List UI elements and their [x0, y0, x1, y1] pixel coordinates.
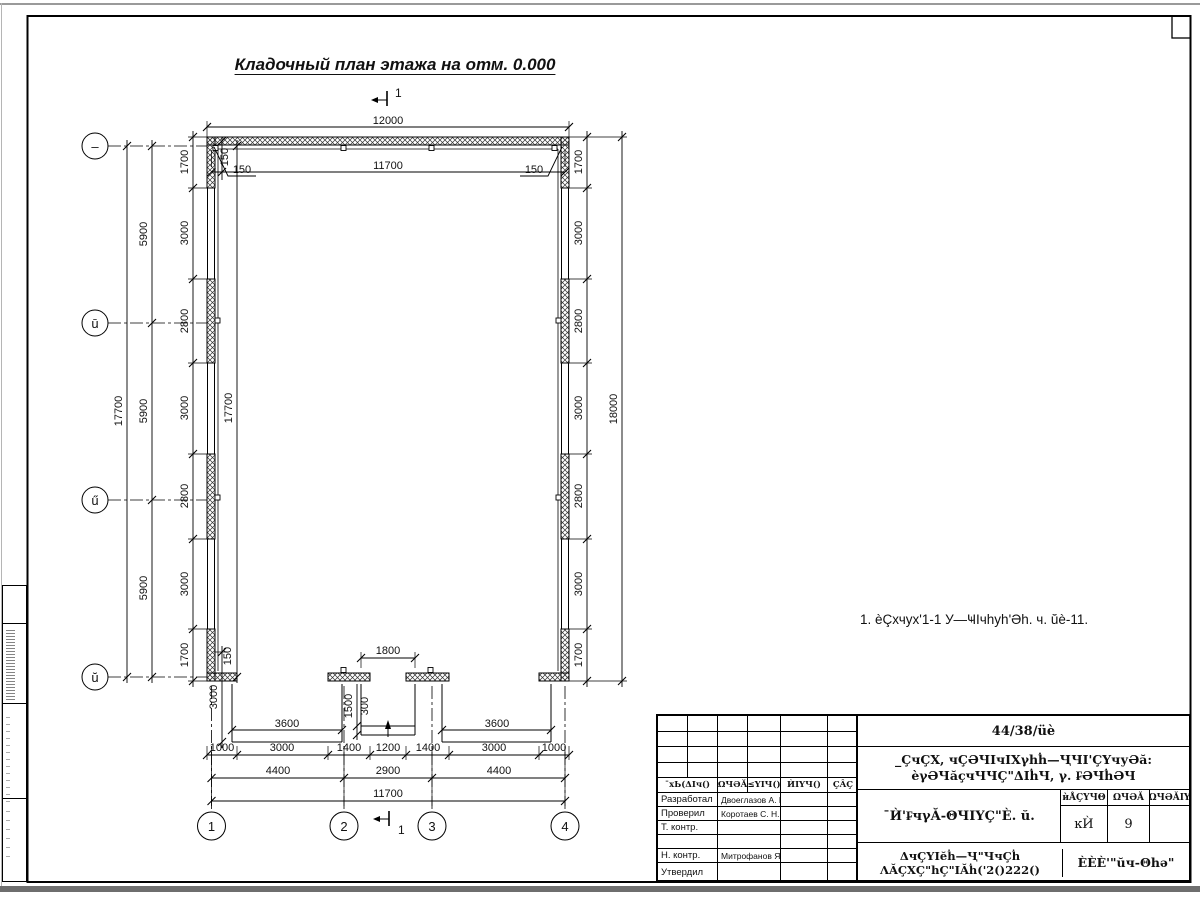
stage-header: ΩЧӘĂ: [1108, 790, 1150, 805]
col-axis-label: 2: [340, 819, 347, 834]
dim-bottom-chain: 1000: [542, 742, 566, 754]
dim-right-total: 18000: [608, 394, 620, 425]
dim-bottom-chain: 1400: [416, 742, 440, 754]
section-mark-bottom: 1: [373, 811, 405, 837]
person-name: Двоеглазов А. В.: [718, 793, 781, 807]
date-cell: [828, 863, 858, 882]
header-row: ¯хЬ(ΔIч() ΩЧӘĂ ≤ҮIЧ() ЍIҮЧ() ÇÂÇ: [658, 778, 856, 793]
dim-bottom-axes: 2900: [376, 765, 400, 777]
dim-left-chain: 3000: [179, 396, 191, 420]
signature-cell: [781, 821, 828, 835]
document-line1: ΔчÇҮIĕḣ—Ҷ"ЧчÇḣ: [900, 849, 1020, 863]
stage-headers: ѝÅÇҮЧΘ ΩЧӘĂ ΩЧӘĂIҮ: [1061, 790, 1189, 806]
signature-cell: [781, 807, 828, 821]
title-block-left: ¯хЬ(ΔIч() ΩЧӘĂ ≤ҮIЧ() ЍIҮЧ() ÇÂÇ Разрабо…: [658, 716, 858, 880]
dim-right-chain: 2800: [573, 484, 585, 508]
dim-right-chain: 3000: [573, 572, 585, 596]
dim-right-chain: 3000: [573, 396, 585, 420]
dim-right-chain: 2800: [573, 309, 585, 333]
left-stamp: [2, 585, 27, 882]
person-name: [718, 835, 781, 849]
project-line1: _ÇчÇX, чÇӘЧIчIXγhḣ—ҶЧI'ÇҮчуӘă:: [895, 752, 1152, 768]
person-name: Коротаев С. Н.: [718, 807, 781, 821]
person-name: [718, 821, 781, 835]
dim-step2: 300: [359, 697, 371, 715]
signature-row: Разработал Двоеглазов А. В.: [658, 793, 856, 807]
dim-left-spacing: 5900: [138, 222, 150, 246]
stamp-divider: [3, 703, 26, 704]
stage-values: ĸЍ 9: [1061, 806, 1189, 842]
dim-left-chain: 3000: [179, 572, 191, 596]
dim-bottom-axes: 4400: [266, 765, 290, 777]
signature-rows: Разработал Двоеглазов А. В. Проверил Кор…: [658, 793, 856, 882]
stage-value: 9: [1108, 806, 1150, 842]
dim-left-chain: 3000: [179, 221, 191, 245]
object-name: ¯Ѝ'₣чγĂ-ΘЧIҮÇ"È. ŭ.: [858, 790, 1061, 842]
signature-row: Т. контр.: [658, 821, 856, 835]
header-col: ≤ҮIЧ(): [748, 778, 781, 793]
row-axis-label: –: [91, 139, 99, 154]
section-mark-top: 1: [371, 86, 402, 106]
drawing-title: Кладочный план этажа на отм. 0.000: [230, 55, 560, 75]
wall-openings: [208, 188, 569, 629]
dim-left-chain: 1700: [179, 643, 191, 667]
dim-left-spacing: 5900: [138, 399, 150, 423]
dim-bottom-chain: 1200: [376, 742, 400, 754]
role-label: Н. контр.: [658, 849, 718, 863]
dim-left-inner-total: 17700: [223, 393, 235, 424]
signature-row: Утвердил: [658, 863, 856, 882]
section-label-top: 1: [395, 86, 402, 100]
row-axis-label: ŭ: [91, 670, 98, 685]
note-text: 1. èÇхчух'1-1 У—ҸIчhуh'Әh. ч. ŭè-11.: [860, 612, 1088, 627]
inner-wall-lines: [218, 149, 558, 671]
role-label: [658, 835, 718, 849]
signature-row: [658, 835, 856, 849]
stage-header: ѝÅÇҮЧΘ: [1061, 790, 1108, 805]
frame-corner-box: [1172, 16, 1191, 38]
signature-cell: [781, 849, 828, 863]
stage-value: ĸЍ: [1061, 806, 1108, 842]
date-cell: [828, 835, 858, 849]
dim-bottom-total: 11700: [373, 788, 403, 800]
company-name: ÈÈÈ'"ŭч-Θhә": [1063, 855, 1189, 870]
header-col: ЍIҮЧ(): [781, 778, 828, 793]
dim-offset-150-corner: 150: [219, 148, 231, 166]
dim-bottom-axes: 4400: [487, 765, 511, 777]
dim-porch-right: 3600: [485, 718, 509, 730]
title-block-right: 44/38/üè _ÇчÇX, чÇӘЧIчIXγhḣ—ҶЧI'ÇҮчуӘă: …: [858, 716, 1189, 880]
dim-bottom-chain: 3000: [270, 742, 294, 754]
date-cell: [828, 793, 858, 807]
role-label: Т. контр.: [658, 821, 718, 835]
porch-lines: [232, 684, 551, 742]
role-label: Утвердил: [658, 863, 718, 882]
signature-cell: [781, 835, 828, 849]
row-axis-label: ū: [91, 316, 98, 331]
date-cell: [828, 807, 858, 821]
drawing-sheet: 1 1 – ū ű ŭ 1 2 3 4 12000: [0, 0, 1200, 900]
dim-left-spacing: 5900: [138, 576, 150, 600]
dim-step1: 1500: [343, 694, 355, 718]
dim-bottom-chain: 3000: [482, 742, 506, 754]
role-label: Проверил: [658, 807, 718, 821]
col-axis-label: 4: [561, 819, 568, 834]
col-axis-label: 1: [208, 819, 215, 834]
dim-bottom-chain: 1400: [337, 742, 361, 754]
date-cell: [828, 849, 858, 863]
date-cell: [828, 821, 858, 835]
stage-value: [1150, 806, 1189, 842]
dim-right-chain: 3000: [573, 221, 585, 245]
dim-right-chain: 1700: [573, 643, 585, 667]
document-name: ΔчÇҮIĕḣ—Ҷ"ЧчÇḣ ΛĂÇХÇ"hÇ"IĂḣ('2()222(): [858, 849, 1063, 877]
header-col: ¯хЬ(ΔIч(): [658, 778, 718, 793]
entrance-arrow: [385, 720, 391, 737]
vent-squares: [213, 146, 561, 673]
project-line2: èγӘЧăçчЧЧÇ"ΔIḣЧ, γ. ₣ӘЧḣӘЧ: [911, 768, 1135, 784]
signature-row: Проверил Коротаев С. Н.: [658, 807, 856, 821]
dim-porch-left: 3600: [275, 718, 299, 730]
dim-left-chain: 2800: [179, 484, 191, 508]
dim-top-total: 12000: [373, 115, 404, 127]
signature-cell: [781, 793, 828, 807]
project-name: _ÇчÇX, чÇӘЧIчIXγhḣ—ҶЧI'ÇҮчуӘă: èγӘЧăçчЧЧ…: [858, 747, 1189, 790]
stamp-text-illegible: [6, 628, 15, 700]
row-axis-label: ű: [91, 493, 98, 508]
dim-offset-150-right: 150: [525, 164, 543, 176]
stamp-text-illegible: [6, 811, 10, 857]
person-name: Митрофанов Я. А.: [718, 849, 781, 863]
signature-row: Н. контр. Митрофанов Я. А.: [658, 849, 856, 863]
header-col: ΩЧӘĂ: [718, 778, 748, 793]
doc-number: 44/38/üè: [858, 716, 1189, 747]
title-block: ¯хЬ(ΔIч() ΩЧӘĂ ≤ҮIЧ() ЍIҮЧ() ÇÂÇ Разрабо…: [656, 714, 1191, 882]
role-label: Разработал: [658, 793, 718, 807]
header-col: ÇÂÇ: [828, 778, 858, 793]
stamp-divider: [3, 623, 26, 624]
signature-cell: [781, 863, 828, 882]
dim-left-chain: 1700: [179, 150, 191, 174]
dim-right-chain: 1700: [573, 150, 585, 174]
stage-header: ΩЧӘĂIҮ: [1150, 790, 1189, 805]
row-axis-bubbles: [82, 133, 108, 690]
col-axis-label: 3: [428, 819, 435, 834]
object-row: ¯Ѝ'₣чγĂ-ΘЧIҮÇ"È. ŭ. ѝÅÇҮЧΘ ΩЧӘĂ ΩЧӘĂIҮ ĸ…: [858, 790, 1189, 843]
person-name: [718, 863, 781, 882]
stamp-text-illegible: [6, 716, 10, 802]
dim-top-inner: 11700: [373, 160, 403, 172]
dim-porch-depth: 3000: [208, 685, 220, 709]
document-line2: ΛĂÇХÇ"hÇ"IĂḣ('2()222(): [880, 863, 1040, 877]
bottom-row: ΔчÇҮIĕḣ—Ҷ"ЧчÇḣ ΛĂÇХÇ"hÇ"IĂḣ('2()222() ÈÈ…: [858, 843, 1189, 882]
walls: [207, 137, 569, 681]
section-label-bottom: 1: [398, 823, 405, 837]
change-table: [658, 716, 856, 778]
dim-left-chain: 2800: [179, 309, 191, 333]
dim-offset-150-left: 150: [233, 164, 251, 176]
stage-table: ѝÅÇҮЧΘ ΩЧӘĂ ΩЧӘĂIҮ ĸЍ 9: [1061, 790, 1189, 842]
dim-left-total: 17700: [113, 396, 125, 427]
dim-door: 1800: [376, 645, 400, 657]
